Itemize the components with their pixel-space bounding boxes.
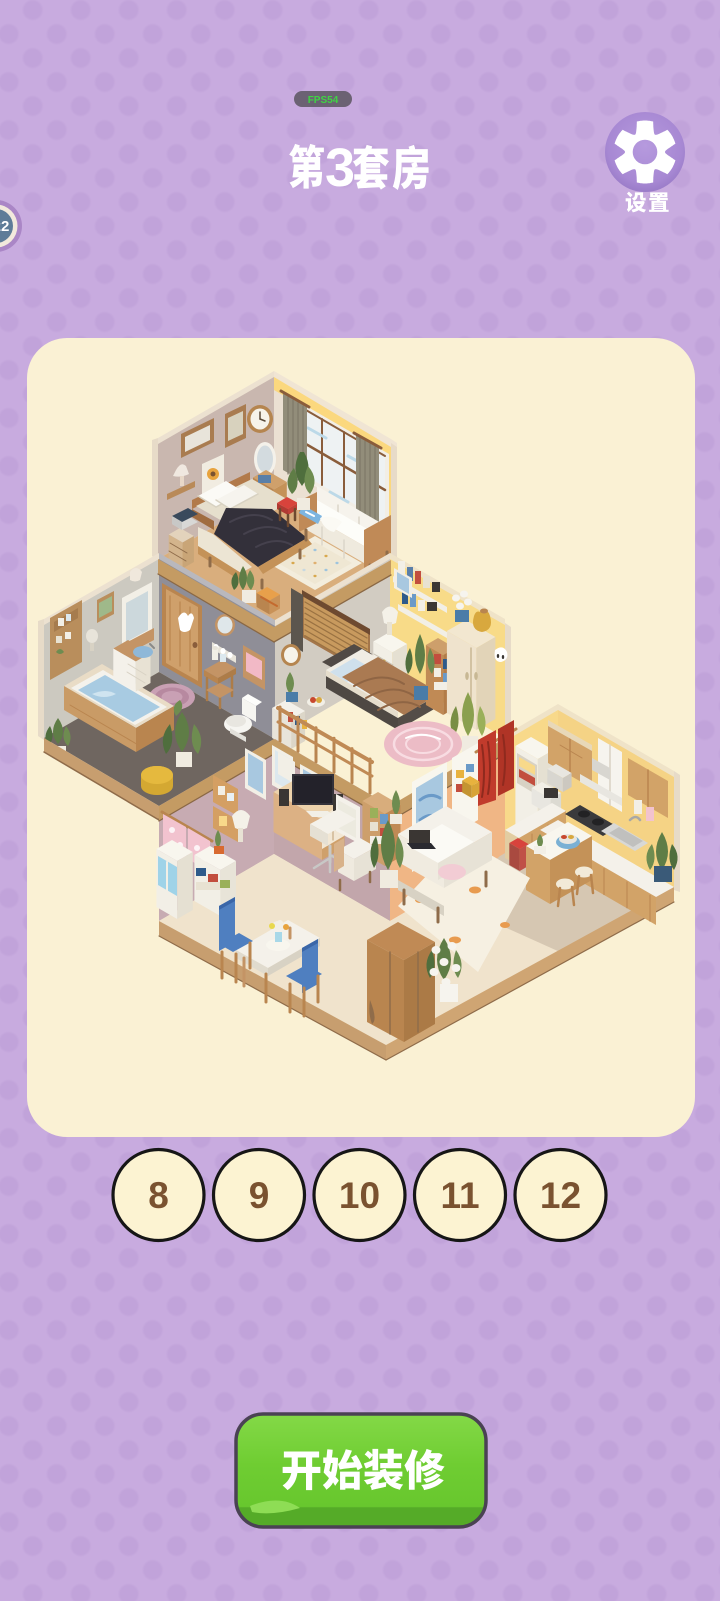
svg-text:8: 8 bbox=[148, 1175, 169, 1216]
svg-text:22: 22 bbox=[0, 218, 9, 235]
svg-text:FPS54: FPS54 bbox=[308, 95, 339, 106]
svg-text:3: 3 bbox=[325, 138, 355, 198]
svg-text:11: 11 bbox=[440, 1175, 479, 1216]
svg-text:9: 9 bbox=[249, 1175, 270, 1216]
svg-text:12: 12 bbox=[540, 1175, 581, 1216]
svg-text:10: 10 bbox=[339, 1175, 380, 1216]
